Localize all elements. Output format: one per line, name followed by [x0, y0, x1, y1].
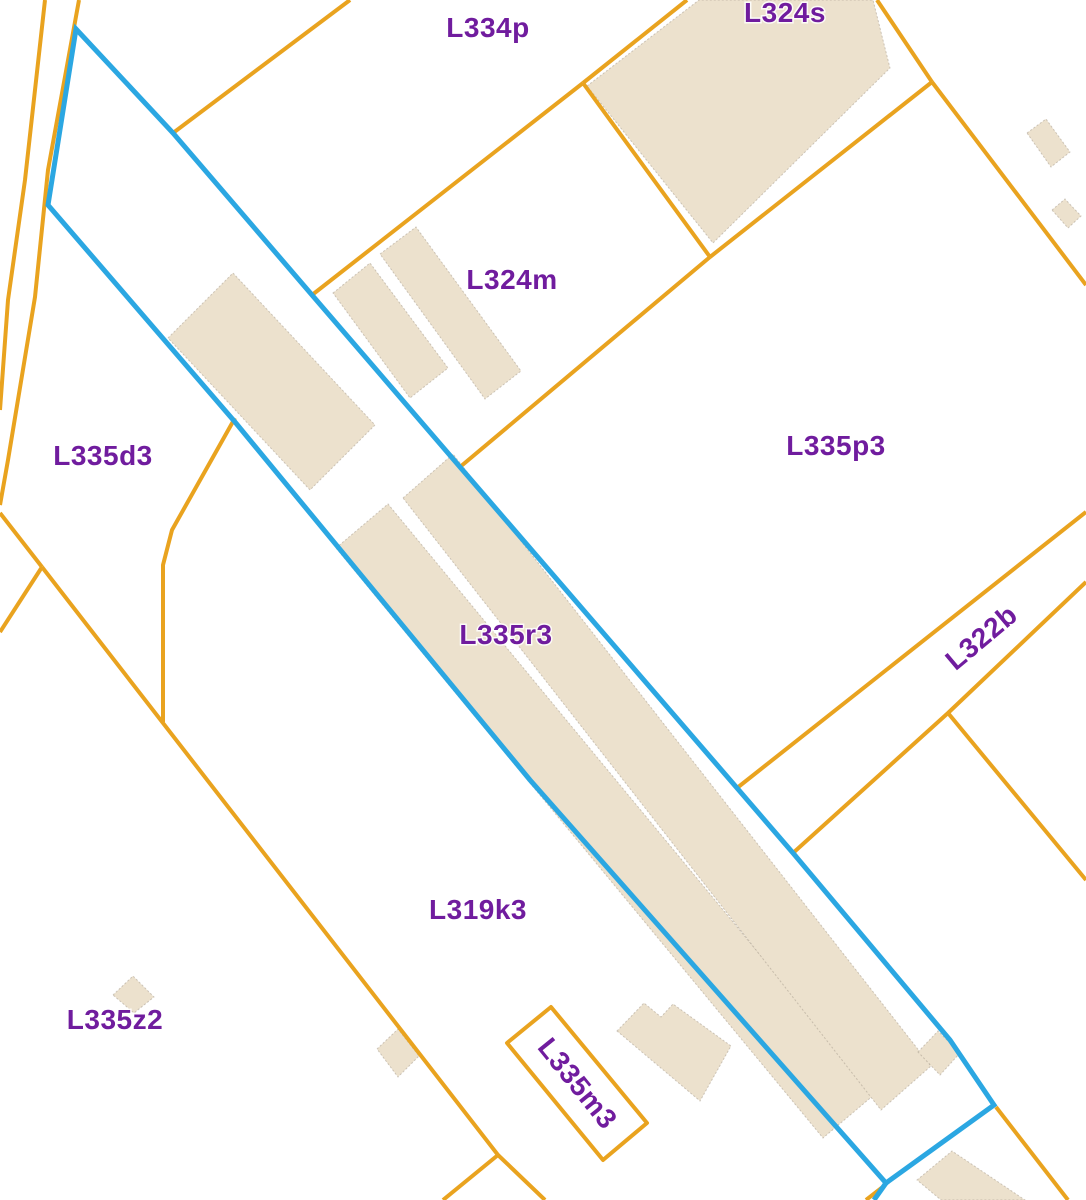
- boundary-l334p-west: [173, 0, 350, 133]
- map-canvas[interactable]: L334p L324s L324m L335d3 L335p3 L335r3 L…: [0, 0, 1086, 1200]
- boundary-sw-branch-west: [0, 567, 42, 632]
- parcel-label-L335p3: L335p3: [786, 430, 886, 461]
- parcel-label-L322b: L322b: [939, 599, 1023, 676]
- building-south-corner: [917, 1151, 1025, 1200]
- parcel-label-L324m: L324m: [466, 264, 557, 295]
- building-l324s: [587, 0, 890, 243]
- boundary-l322b-se: [793, 582, 1086, 853]
- boundary-ne-diagonal: [932, 82, 1086, 285]
- boundary-west-link: [0, 513, 42, 567]
- boundary-west-outer: [0, 0, 45, 410]
- boundary-se-corner: [996, 1107, 1068, 1200]
- building-strip-long-sw: [336, 504, 875, 1138]
- building-notched: [617, 1003, 731, 1101]
- building-ne-small-2: [1052, 199, 1081, 228]
- building-l319k3: [377, 1029, 419, 1077]
- boundary-sw-branch-left: [443, 1155, 498, 1200]
- parcel-label-L335r3: L335r3: [459, 619, 552, 650]
- boundary-l335d3-east: [163, 418, 235, 722]
- boundary-se-branch: [948, 713, 1086, 880]
- parcel-label-L335d3: L335d3: [53, 440, 153, 471]
- parcel-label-L335z2: L335z2: [67, 1004, 163, 1035]
- parcel-label-L324s: L324s: [744, 0, 826, 28]
- building-ne-small-1: [1027, 119, 1070, 167]
- map-viewport[interactable]: L334p L324s L324m L335d3 L335p3 L335r3 L…: [0, 0, 1086, 1200]
- parcel-label-L334p: L334p: [446, 12, 529, 43]
- parcel-label-L319k3: L319k3: [429, 894, 527, 925]
